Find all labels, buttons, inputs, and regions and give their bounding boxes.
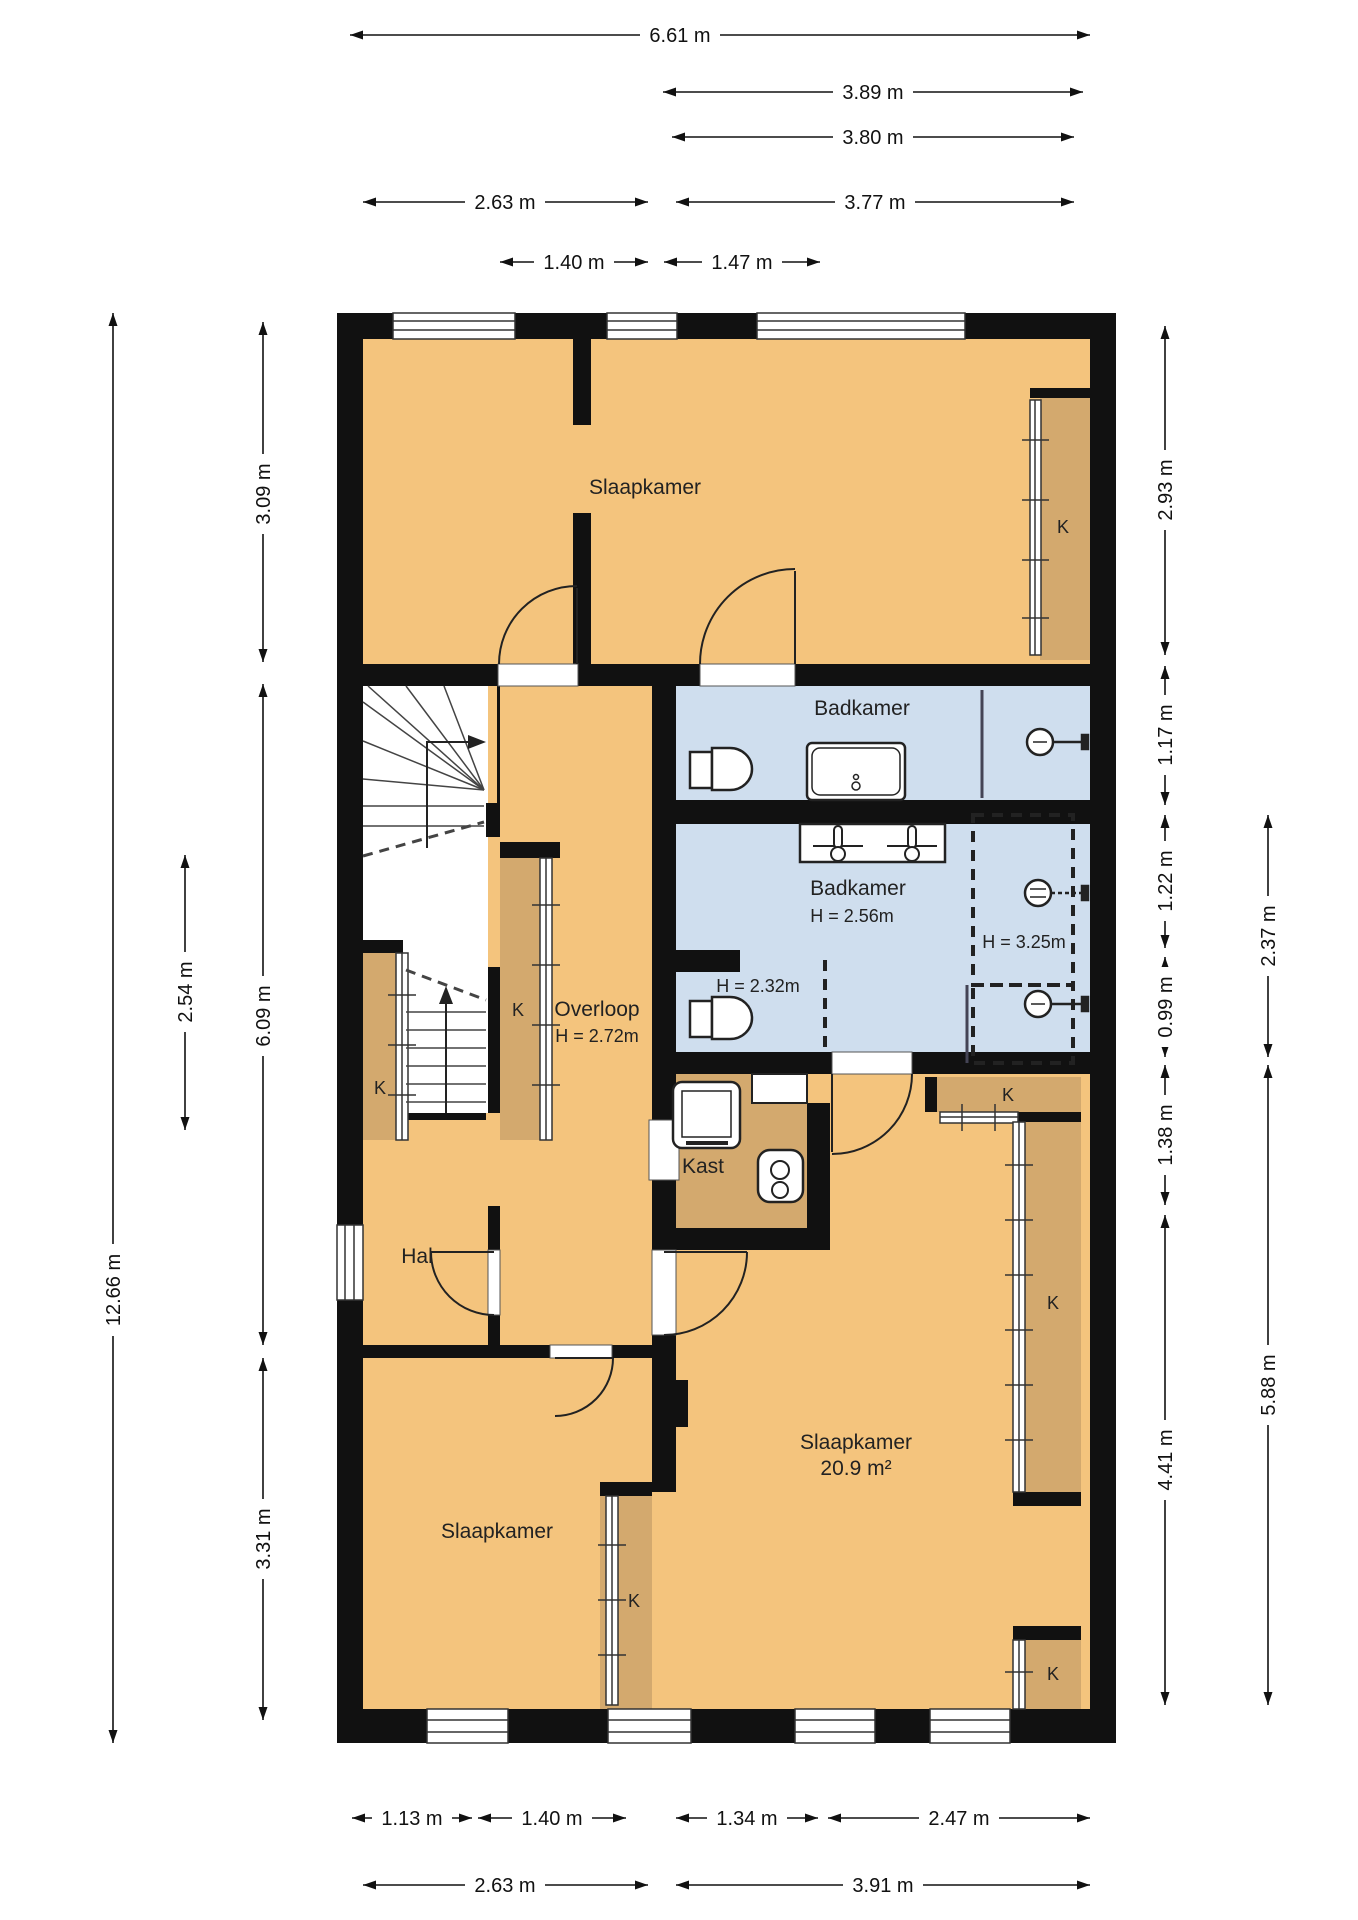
bathtub-icon bbox=[807, 743, 905, 800]
dim-label: 2.47 m bbox=[928, 1808, 989, 1830]
floor-plan-page: Slaapkamer Badkamer Badkamer H = 2.56m H… bbox=[0, 0, 1358, 1920]
floor-plan: Slaapkamer Badkamer Badkamer H = 2.56m H… bbox=[0, 0, 1358, 1920]
dim-top-1-47: 1.47 m bbox=[664, 249, 820, 275]
room-label-kast: Kast bbox=[682, 1155, 724, 1178]
dim-label: 1.22 m bbox=[1155, 850, 1177, 911]
dim-left-3-31: 3.31 m bbox=[250, 1358, 276, 1720]
dim-label: 2.63 m bbox=[474, 192, 535, 214]
dim-top-1-40: 1.40 m bbox=[500, 249, 648, 275]
dim-bottom-1-13: 1.13 m bbox=[352, 1805, 472, 1831]
dim-top-3-77: 3.77 m bbox=[676, 189, 1074, 215]
room-label-landing: Overloop bbox=[554, 998, 639, 1021]
room-height-wc: H = 2.32m bbox=[716, 976, 800, 996]
dim-right-0-99: 0.99 m bbox=[1152, 957, 1178, 1057]
dim-label: 1.34 m bbox=[716, 1808, 777, 1830]
dim-label: 3.09 m bbox=[253, 463, 275, 524]
window-bottom-1 bbox=[427, 1709, 508, 1743]
window-left-hall bbox=[337, 1225, 363, 1300]
door-frame-landing-bedroomright bbox=[652, 1250, 676, 1335]
closet-hall bbox=[363, 953, 396, 1140]
closet-mark: K bbox=[1002, 1085, 1014, 1105]
dim-left-6-09: 6.09 m bbox=[250, 684, 276, 1345]
dim-right-1-22: 1.22 m bbox=[1152, 815, 1178, 948]
room-label-bedroom-bottom: Slaapkamer bbox=[441, 1520, 553, 1543]
shaft-niche bbox=[752, 1074, 807, 1103]
room-label-hall: Hal bbox=[401, 1245, 433, 1268]
dim-label: 6.61 m bbox=[649, 25, 710, 47]
closet-mark: K bbox=[1047, 1293, 1059, 1313]
dim-label: 3.80 m bbox=[842, 127, 903, 149]
dim-label: 2.37 m bbox=[1258, 905, 1280, 966]
door-frame-bathroom-bedroomright bbox=[832, 1052, 912, 1074]
toilet-icon bbox=[690, 997, 752, 1039]
dim-right-1-38: 1.38 m bbox=[1152, 1065, 1178, 1205]
dim-label: 12.66 m bbox=[103, 1254, 125, 1326]
closet-mark: K bbox=[374, 1078, 386, 1098]
dim-bottom-1-40: 1.40 m bbox=[478, 1805, 626, 1831]
dim-bottom-2-63: 2.63 m bbox=[363, 1872, 648, 1898]
dim-label: 1.40 m bbox=[521, 1808, 582, 1830]
dim-right-5-88: 5.88 m bbox=[1255, 1065, 1281, 1705]
window-top-1 bbox=[393, 313, 515, 339]
dim-label: 2.93 m bbox=[1155, 459, 1177, 520]
dim-top-2-63: 2.63 m bbox=[363, 189, 648, 215]
dim-bottom-3-91: 3.91 m bbox=[676, 1872, 1090, 1898]
dim-left-12-66: 12.66 m bbox=[100, 313, 126, 1743]
dim-label: 3.91 m bbox=[852, 1875, 913, 1897]
closet-mark: K bbox=[628, 1591, 640, 1611]
dim-label: 3.77 m bbox=[844, 192, 905, 214]
dim-top-3-89: 3.89 m bbox=[663, 79, 1083, 105]
dim-label: 2.54 m bbox=[175, 961, 197, 1022]
window-top-2 bbox=[607, 313, 677, 339]
dim-label: 1.38 m bbox=[1155, 1104, 1177, 1165]
dim-label: 6.09 m bbox=[253, 985, 275, 1046]
window-bottom-2 bbox=[608, 1709, 691, 1743]
room-height-shower: H = 3.25m bbox=[982, 932, 1066, 952]
dim-label: 3.31 m bbox=[253, 1508, 275, 1569]
dim-right-2-93: 2.93 m bbox=[1152, 326, 1178, 655]
room-height-landing: H = 2.72m bbox=[555, 1026, 639, 1046]
dim-label: 1.40 m bbox=[543, 252, 604, 274]
boiler-icon bbox=[758, 1150, 803, 1202]
dim-right-1-17: 1.17 m bbox=[1152, 666, 1178, 805]
room-label-bedroom-top: Slaapkamer bbox=[589, 476, 701, 499]
dim-label: 5.88 m bbox=[1258, 1354, 1280, 1415]
closet-mark: K bbox=[512, 1000, 524, 1020]
dim-top-3-80: 3.80 m bbox=[672, 124, 1074, 150]
room-label-bedroom-right: Slaapkamer bbox=[800, 1431, 912, 1454]
window-bottom-3 bbox=[795, 1709, 875, 1743]
toilet-icon bbox=[690, 748, 752, 790]
room-height-bathroom-mid: H = 2.56m bbox=[810, 906, 894, 926]
dim-top-6-61: 6.61 m bbox=[350, 22, 1090, 48]
dim-left-2-54: 2.54 m bbox=[172, 855, 198, 1130]
closet-mark: K bbox=[1047, 1664, 1059, 1684]
room-area-bedroom-right: 20.9 m² bbox=[820, 1457, 891, 1480]
dim-label: 1.17 m bbox=[1155, 704, 1177, 765]
dim-label: 2.63 m bbox=[474, 1875, 535, 1897]
closet-landing bbox=[500, 858, 540, 1140]
washing-machine-icon bbox=[673, 1082, 740, 1148]
dim-label: 0.99 m bbox=[1155, 976, 1177, 1037]
dim-label: 3.89 m bbox=[842, 82, 903, 104]
dim-label: 1.13 m bbox=[381, 1808, 442, 1830]
door-frame-landing-hall bbox=[488, 1250, 500, 1315]
dim-label: 4.41 m bbox=[1155, 1429, 1177, 1490]
dim-label: 1.47 m bbox=[711, 252, 772, 274]
window-top-3 bbox=[757, 313, 965, 339]
dim-bottom-1-34: 1.34 m bbox=[676, 1805, 818, 1831]
washbasin-icon bbox=[800, 824, 945, 862]
closet-mark: K bbox=[1057, 517, 1069, 537]
dim-bottom-2-47: 2.47 m bbox=[828, 1805, 1090, 1831]
dim-right-2-37: 2.37 m bbox=[1255, 815, 1281, 1057]
dim-right-4-41: 4.41 m bbox=[1152, 1215, 1178, 1705]
room-label-bathroom-mid: Badkamer bbox=[810, 877, 906, 900]
room-label-bathroom-top: Badkamer bbox=[814, 697, 910, 720]
window-bottom-4 bbox=[930, 1709, 1010, 1743]
dim-left-3-09: 3.09 m bbox=[250, 322, 276, 662]
door-frame-bedroomtop-bathroom bbox=[700, 664, 795, 686]
door-frame-bedroomtop-landing bbox=[498, 664, 578, 686]
door-frame-hall-bedroombottom bbox=[550, 1345, 612, 1358]
